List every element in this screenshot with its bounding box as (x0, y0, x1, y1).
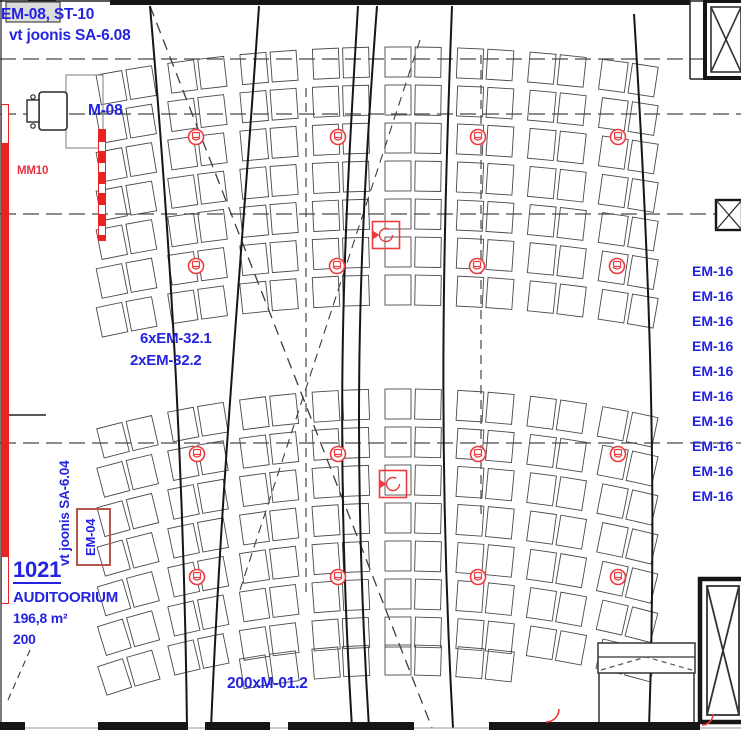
label-ref-sa608: vt joonis SA-6.08 (9, 28, 131, 44)
seat (240, 397, 270, 430)
seat (270, 508, 299, 541)
seat (312, 505, 340, 537)
seat (598, 174, 628, 207)
seat (626, 451, 658, 486)
seat (486, 430, 515, 462)
seat (270, 546, 299, 579)
construction-diagonal (240, 40, 420, 590)
label-em16: EM-16 (692, 313, 733, 329)
seat (415, 161, 442, 191)
label-em08-st10: EM-08, ST-10 (1, 7, 94, 23)
seat (385, 645, 411, 675)
label-200xm012: 200xM-01.2 (227, 676, 308, 692)
seat (270, 432, 299, 465)
seat (527, 205, 556, 237)
seat (385, 389, 411, 419)
seat (126, 220, 157, 254)
red-wall-segment-hollow (1, 104, 9, 144)
seat (385, 427, 411, 457)
seat (312, 86, 339, 117)
seat (456, 505, 484, 537)
seat (342, 503, 369, 534)
seat (385, 617, 411, 647)
door-swing-red (546, 709, 559, 722)
seat (126, 143, 157, 177)
seat (556, 477, 586, 511)
seat (557, 284, 586, 317)
seat (126, 416, 158, 451)
seat (312, 647, 340, 679)
seat (270, 164, 298, 196)
seat (526, 588, 556, 621)
seat (486, 278, 514, 310)
seat (556, 554, 587, 588)
seat (415, 645, 442, 676)
seat (456, 390, 484, 422)
seat (456, 162, 483, 193)
label-2xem322: 2xEM-32.2 (130, 353, 202, 368)
seat (456, 200, 483, 231)
seat (96, 264, 127, 299)
seat (486, 125, 514, 157)
seat (628, 63, 658, 97)
seat (198, 95, 227, 128)
door-lintel (598, 643, 695, 673)
seat (240, 167, 269, 199)
seat (240, 129, 269, 161)
seat (312, 48, 339, 79)
seat (126, 181, 157, 215)
seat (168, 60, 198, 93)
seat (485, 583, 514, 616)
seat (342, 541, 369, 572)
room-number: 1021 (13, 559, 61, 584)
seat (270, 126, 298, 158)
seat (126, 493, 158, 528)
label-em16: EM-16 (692, 413, 733, 429)
seat (97, 462, 130, 498)
seat (385, 47, 411, 77)
label-em16: EM-16 (692, 288, 733, 304)
bottom-wall-segment (0, 722, 25, 730)
projector-body (39, 92, 67, 130)
label-em16: EM-16 (692, 488, 733, 504)
seat (126, 572, 159, 608)
seat (97, 422, 130, 458)
seat (127, 611, 160, 647)
aisle-curve (634, 14, 652, 728)
bottom-wall-segment (288, 722, 414, 730)
seat (343, 275, 370, 306)
seat (385, 275, 411, 305)
seat (486, 468, 515, 500)
seat (556, 592, 587, 626)
top-wall (110, 0, 690, 5)
seat (126, 66, 156, 100)
seat (415, 503, 442, 534)
seat (625, 607, 658, 643)
seat (527, 396, 556, 429)
label-em16: EM-16 (692, 338, 733, 354)
seat (486, 392, 514, 424)
seat (312, 391, 340, 423)
red-wall-segment-solid (1, 144, 9, 556)
seat (198, 402, 229, 436)
seat (486, 163, 514, 195)
seat (415, 579, 442, 610)
seat (126, 297, 157, 331)
seat (556, 515, 587, 549)
projector-knob (31, 124, 35, 128)
seat (556, 400, 586, 434)
seat (198, 171, 227, 204)
seat (415, 85, 442, 115)
seat (312, 581, 340, 613)
label-em16: EM-16 (692, 463, 733, 479)
construction-diagonal (8, 650, 30, 700)
seat (456, 647, 484, 679)
seat (198, 286, 228, 319)
seat (168, 640, 200, 675)
seat (596, 600, 628, 635)
seat (528, 90, 557, 122)
seat (198, 595, 229, 629)
seat (456, 48, 483, 79)
label-em04: EM-04 (84, 519, 97, 556)
seat (312, 276, 340, 307)
seat (342, 465, 369, 496)
seat (343, 123, 370, 154)
seat (270, 50, 298, 82)
ceiling-fixture-circle (380, 229, 393, 242)
seat (343, 85, 370, 116)
seat (240, 473, 270, 506)
seat (343, 237, 370, 268)
label-em16: EM-16 (692, 263, 733, 279)
seat (415, 275, 442, 306)
seat (527, 549, 557, 582)
seat (385, 123, 411, 153)
red-wall-segment-hollow (1, 556, 9, 604)
seat (486, 49, 514, 81)
seat (168, 175, 198, 208)
seat (486, 240, 514, 272)
seat (312, 619, 340, 651)
label-6xem321: 6xEM-32.1 (140, 331, 212, 346)
seat (527, 511, 557, 544)
seat (485, 545, 514, 577)
seat (168, 485, 199, 520)
seat (270, 279, 298, 311)
seat (527, 166, 556, 198)
seat (312, 162, 339, 193)
seat (97, 619, 131, 655)
seat (270, 585, 299, 618)
seat (527, 281, 556, 313)
seat (127, 650, 160, 686)
seat (598, 213, 628, 246)
seat (270, 241, 298, 273)
seat (126, 533, 159, 568)
seat (198, 56, 227, 89)
seat (385, 541, 411, 571)
seat (385, 579, 411, 609)
seat (485, 507, 514, 539)
seat (270, 203, 298, 235)
seat (557, 246, 586, 279)
seat (456, 86, 483, 117)
seat (270, 394, 299, 426)
seat (526, 626, 556, 660)
seat (385, 161, 411, 191)
seat (557, 208, 586, 241)
seat (628, 217, 659, 251)
seat (485, 621, 514, 654)
seat (98, 659, 132, 696)
seat (415, 47, 442, 77)
projector-mount (27, 100, 39, 122)
bottom-wall-segment (489, 722, 700, 730)
seat (527, 434, 557, 467)
seat (557, 131, 586, 164)
seat (270, 88, 298, 120)
seat (239, 588, 269, 622)
seat (415, 237, 442, 267)
seat (456, 276, 483, 307)
seat (456, 466, 484, 498)
room-capacity: 200 (13, 632, 36, 646)
seat (312, 200, 339, 231)
seat (198, 518, 229, 552)
seat (415, 389, 442, 420)
ceiling-fixture-circle (387, 478, 400, 491)
seat (96, 71, 127, 105)
seat (627, 294, 658, 328)
seat (415, 123, 442, 153)
seat (168, 407, 199, 441)
seat (628, 256, 659, 290)
seat (385, 85, 411, 115)
seat (168, 213, 198, 246)
seat (597, 484, 628, 519)
seat (557, 93, 586, 126)
seat (528, 52, 556, 84)
seat (527, 128, 556, 160)
seat (597, 523, 629, 558)
seat (342, 389, 369, 420)
label-em16: EM-16 (692, 388, 733, 404)
seat (527, 473, 557, 506)
ceiling-fixture-arrow (373, 231, 380, 240)
projector-knob (31, 95, 35, 99)
seat (597, 407, 628, 441)
label-m08: M-08 (88, 103, 123, 119)
seat (415, 541, 442, 572)
auditorium-floor-plan: EM-08, ST-10 vt joonis SA-6.08 M-08 MM10… (0, 0, 741, 730)
seat (240, 91, 269, 123)
seat (126, 455, 158, 490)
seat (96, 302, 128, 337)
seat (557, 169, 586, 202)
seat (486, 202, 514, 234)
label-em16: EM-16 (692, 438, 733, 454)
room-name: AUDITOORIUM (13, 590, 118, 605)
seat (415, 617, 442, 648)
seat (598, 289, 628, 323)
seat (599, 59, 629, 92)
seat (456, 619, 484, 651)
seat (126, 104, 157, 138)
seat (240, 435, 270, 468)
label-em16: EM-16 (692, 363, 733, 379)
seat (555, 631, 586, 665)
bottom-wall-segment (205, 722, 270, 730)
seat (628, 102, 658, 136)
label-mm10: MM10 (17, 166, 48, 178)
seat (126, 258, 157, 292)
seat (240, 512, 270, 545)
red-dashed-wall-strip (98, 129, 106, 241)
seat (385, 503, 411, 533)
label-ref-sa604: vt joonis SA-6.04 (58, 461, 72, 566)
seat (527, 243, 556, 275)
seat (626, 412, 658, 447)
seat (485, 649, 514, 682)
seat (456, 581, 484, 613)
seat (415, 465, 442, 496)
seat (239, 550, 269, 583)
room-area: 196,8 m² (13, 611, 67, 625)
bottom-wall-segment (98, 722, 188, 730)
